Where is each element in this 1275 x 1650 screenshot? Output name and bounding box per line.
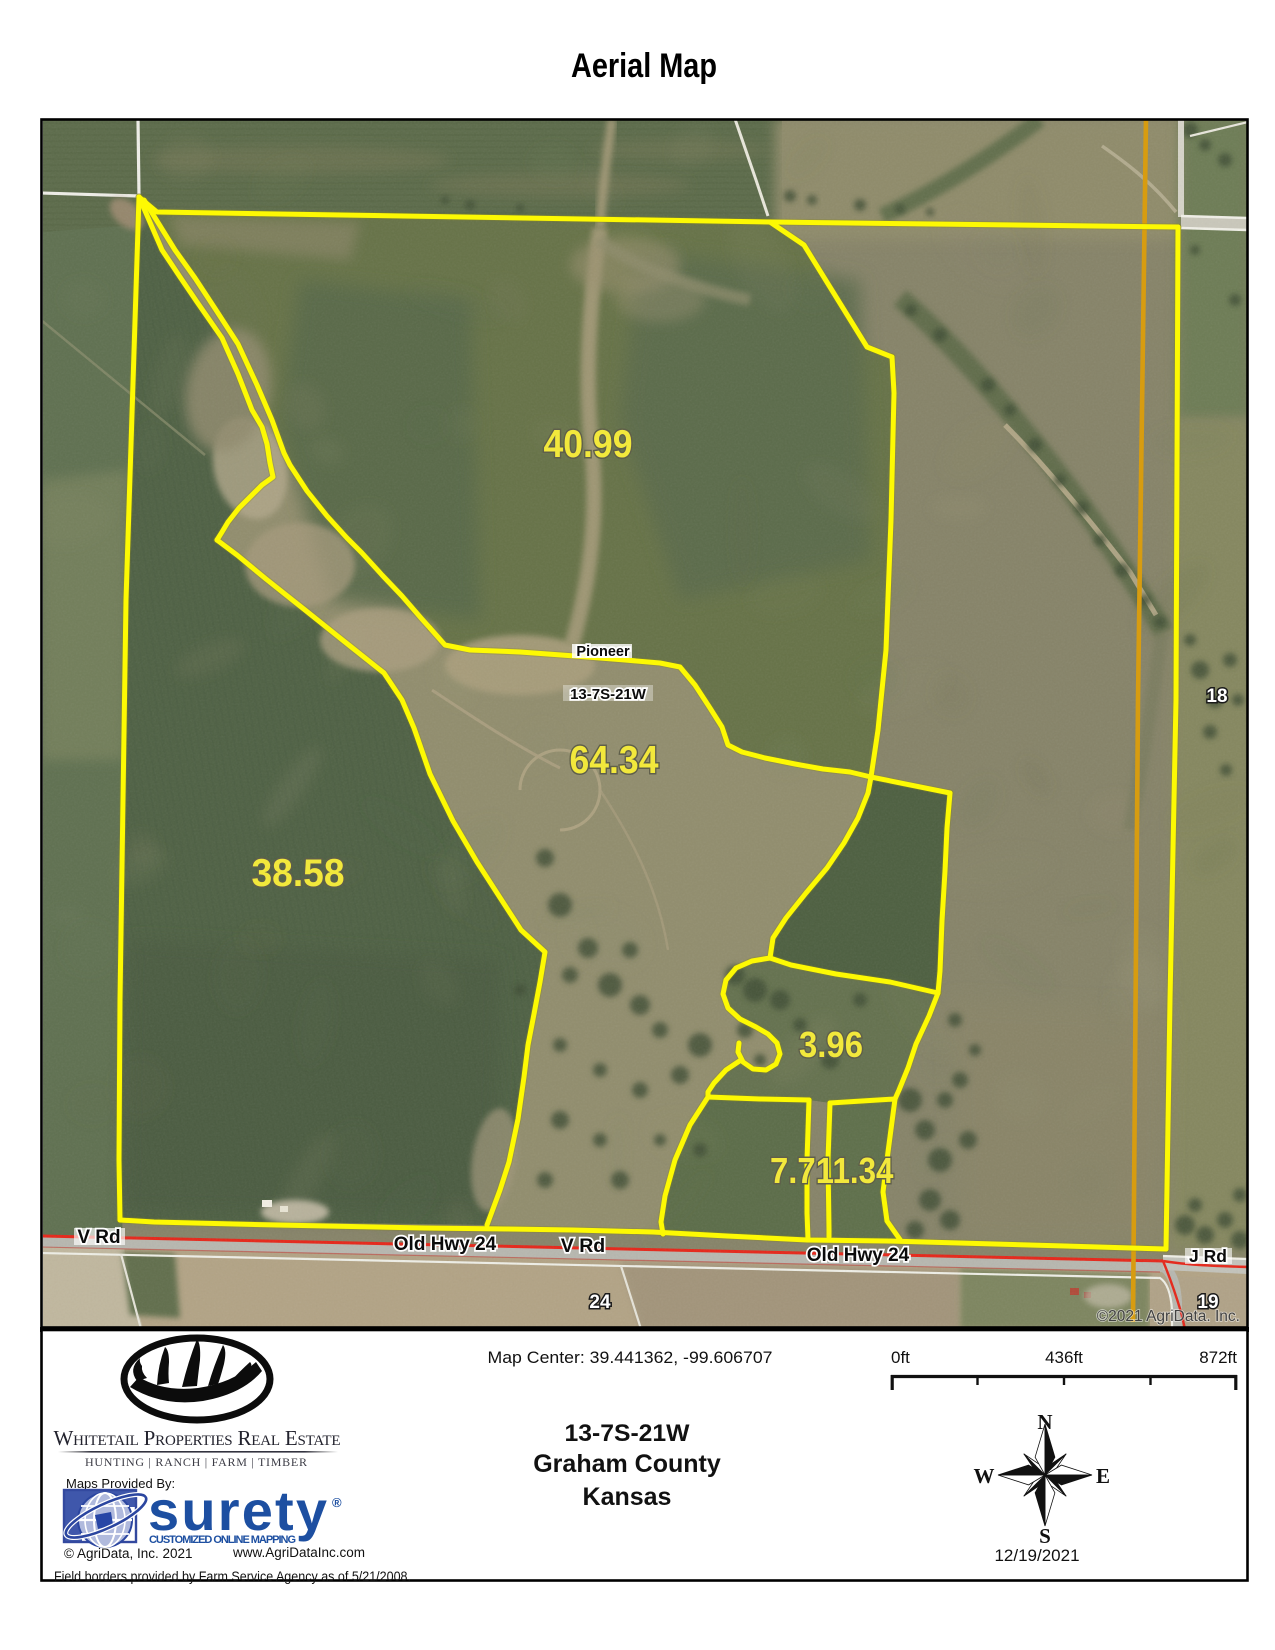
svg-text:38.58: 38.58 [252, 852, 345, 895]
svg-text:Field borders provided by Farm: Field borders provided by Farm Service A… [54, 1569, 411, 1584]
svg-text:24: 24 [589, 1292, 611, 1313]
svg-text:V Rd: V Rd [561, 1235, 605, 1257]
svg-text:12/19/2021: 12/19/2021 [994, 1546, 1079, 1565]
svg-text:872ft: 872ft [1199, 1348, 1237, 1367]
svg-text:W: W [974, 1464, 995, 1488]
svg-text:E: E [1096, 1464, 1110, 1488]
svg-text:3.96: 3.96 [799, 1024, 863, 1065]
svg-text:®: ® [332, 1495, 342, 1510]
svg-text:436ft: 436ft [1045, 1348, 1083, 1367]
svg-text:Whitetail Properties Real Esta: Whitetail Properties Real Estate [54, 1426, 341, 1450]
svg-text:0ft: 0ft [891, 1348, 910, 1367]
svg-text:Aerial Map: Aerial Map [571, 47, 717, 85]
svg-text:N: N [1037, 1410, 1052, 1434]
svg-text:V Rd: V Rd [77, 1227, 120, 1248]
svg-text:40.99: 40.99 [544, 423, 633, 466]
svg-text:HUNTING | RANCH | FARM | TIMBE: HUNTING | RANCH | FARM | TIMBER [85, 1455, 309, 1469]
svg-text:Graham County: Graham County [533, 1450, 721, 1478]
svg-text:© AgriData, Inc. 2021: © AgriData, Inc. 2021 [64, 1546, 193, 1561]
svg-text:www.AgriDataInc.com: www.AgriDataInc.com [232, 1545, 365, 1560]
svg-text:Map Center: 39.441362, -99.606: Map Center: 39.441362, -99.606707 [488, 1348, 773, 1367]
svg-text:J Rd: J Rd [1189, 1246, 1227, 1266]
svg-text:Kansas: Kansas [583, 1483, 672, 1511]
svg-text:Old Hwy 24: Old Hwy 24 [394, 1234, 497, 1255]
svg-text:1.34: 1.34 [833, 1150, 894, 1191]
svg-text:S: S [1039, 1524, 1051, 1548]
svg-text:Old Hwy 24: Old Hwy 24 [807, 1245, 910, 1266]
svg-text:©2021 AgriData. Inc.: ©2021 AgriData. Inc. [1097, 1308, 1240, 1325]
svg-text:surety: surety [148, 1479, 327, 1542]
svg-text:13-7S-21W: 13-7S-21W [570, 686, 647, 703]
svg-text:13-7S-21W: 13-7S-21W [565, 1420, 690, 1447]
svg-text:Pioneer: Pioneer [576, 644, 630, 660]
svg-text:64.34: 64.34 [570, 739, 659, 782]
svg-text:7.71: 7.71 [770, 1150, 834, 1191]
svg-text:18: 18 [1206, 686, 1227, 707]
